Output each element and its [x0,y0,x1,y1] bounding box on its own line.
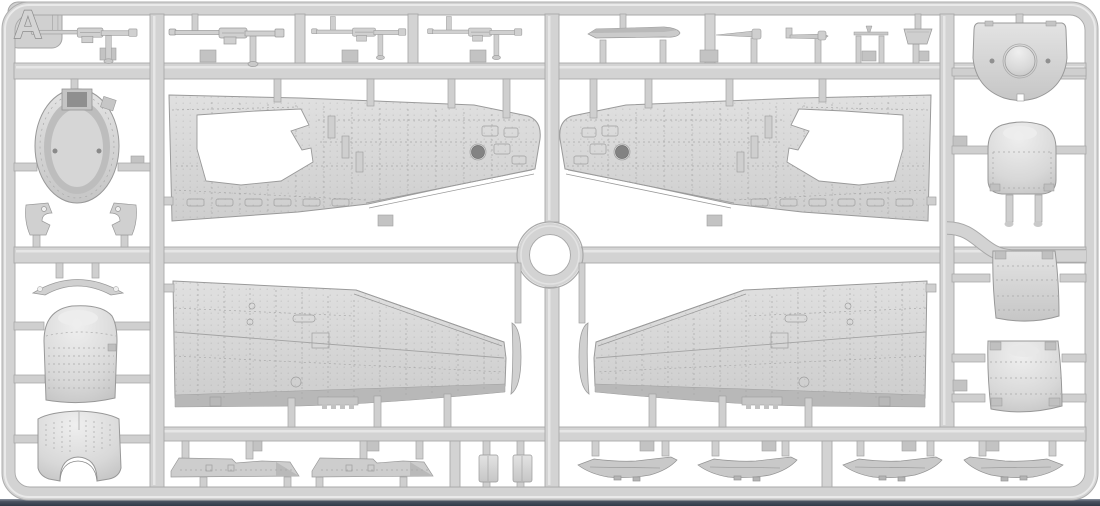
cowling-front [44,306,117,403]
cowl-front-ring [35,89,119,203]
cowling-top-panel [988,122,1056,194]
access-panel [904,29,932,44]
hinge-block-2 [513,455,532,482]
sprue-letter: A [14,3,43,47]
cowling-side-panel [988,341,1062,412]
hinge-block-1 [479,455,498,482]
blade-fairing [588,27,680,38]
cowling-mid-panel [993,251,1059,321]
sprue-photo: A [0,0,1100,506]
